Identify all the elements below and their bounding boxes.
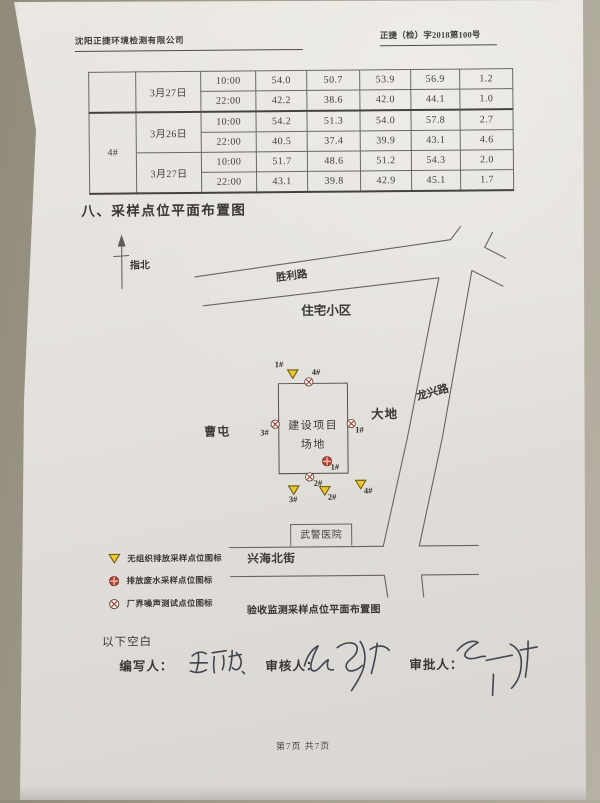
site-label-line2: 场地 <box>279 436 347 453</box>
noise-point-3: 3# <box>270 419 282 429</box>
document-number: 正捷（检）字2018第100号 <box>380 28 497 46</box>
triangle-marker-icon <box>287 369 299 379</box>
value-cell: 39.9 <box>360 131 411 151</box>
time-cell: 10:00 <box>201 152 256 172</box>
blank-below-note: 以下空白 <box>102 633 152 649</box>
value-cell: 51.7 <box>256 151 307 171</box>
value-cell: 48.6 <box>307 151 360 171</box>
value-cell: 43.1 <box>411 130 460 150</box>
date-cell: 3月27日 <box>136 71 201 112</box>
value-cell: 43.1 <box>257 171 308 192</box>
page-content: 沈阳正捷环境检测有限公司 正捷（检）字2018第100号 3月27日 10:00… <box>0 0 600 803</box>
compass-north-icon <box>114 234 129 288</box>
noise-point-2: 2# <box>305 472 317 482</box>
time-cell: 10:00 <box>201 111 256 132</box>
value-cell: 1.2 <box>460 69 513 89</box>
reviewer-label: 审核人： <box>265 655 319 674</box>
point-label: 3# <box>260 427 269 437</box>
writer-label: 编写人： <box>119 655 173 674</box>
noise-marker-icon <box>109 598 120 609</box>
value-cell: 45.1 <box>412 170 461 191</box>
sampling-point-unorganized-1: 1# <box>287 369 299 379</box>
photo-of-document: { "header": { "company": "沈阳正捷环境检测有限公司",… <box>0 0 600 800</box>
point-label: 1# <box>355 424 364 434</box>
monitoring-table: 3月27日 10:00 54.0 50.7 53.9 56.9 1.2 22:0… <box>88 68 514 195</box>
hospital-box: 武警医院 <box>290 524 352 547</box>
value-cell: 40.5 <box>256 131 307 151</box>
value-cell: 42.9 <box>361 171 412 192</box>
sampling-point-unorganized-4: 4# <box>355 479 367 489</box>
area-label-dadi: 大地 <box>371 403 398 422</box>
legend-item-unorganized: 无组织排放采样点位图标 <box>108 552 222 565</box>
value-cell: 4.6 <box>460 130 513 150</box>
point-cell <box>89 72 136 113</box>
approver-signature <box>457 641 537 696</box>
noise-marker-icon <box>270 419 280 429</box>
point-label: 4# <box>364 485 373 495</box>
value-cell: 2.7 <box>460 109 513 130</box>
document-page: 沈阳正捷环境检测有限公司 正捷（检）字2018第100号 3月27日 10:00… <box>0 0 600 800</box>
map-caption: 验收监测采样点位平面布置图 <box>247 600 381 616</box>
writer-signature <box>190 650 244 673</box>
point-label: 1# <box>275 359 284 369</box>
wastewater-point-1: 1# <box>321 456 333 466</box>
value-cell: 57.8 <box>411 110 460 131</box>
date-cell: 3月26日 <box>136 112 201 153</box>
legend-label: 厂界噪声测试点位图标 <box>127 597 213 610</box>
noise-marker-icon <box>304 377 314 387</box>
time-cell: 22:00 <box>201 132 256 152</box>
site-label-line1: 建设项目 <box>279 417 347 434</box>
construction-site-box: 建设项目 场地 <box>278 383 349 475</box>
page-number: 第7页 共7页 <box>276 739 330 752</box>
time-cell: 10:00 <box>201 71 256 91</box>
sampling-point-unorganized-3: 3# <box>288 485 300 495</box>
point-label: 2# <box>328 492 337 502</box>
road-label-xinghai: 兴海北街 <box>247 550 295 566</box>
point-label: 1# <box>331 462 340 472</box>
value-cell: 51.2 <box>360 151 411 171</box>
company-name: 沈阳正捷环境检测有限公司 <box>75 33 303 52</box>
value-cell: 56.9 <box>411 69 460 89</box>
noise-point-1: 1# <box>346 418 358 428</box>
wastewater-marker-icon <box>109 575 120 586</box>
noise-point-4: 4# <box>304 377 316 387</box>
section-title: 八、采样点位平面布置图 <box>81 198 246 219</box>
value-cell: 54.0 <box>360 110 411 131</box>
point-cell: 4# <box>89 112 137 193</box>
value-cell: 54.3 <box>411 150 460 170</box>
road-label-longxing: 龙兴路 <box>414 380 450 404</box>
area-label-residential: 住宅小区 <box>301 300 351 319</box>
legend-label: 无组织排放采样点位图标 <box>127 552 222 565</box>
time-cell: 22:00 <box>202 172 257 193</box>
point-label: 4# <box>312 367 321 377</box>
value-cell: 54.2 <box>256 111 307 132</box>
date-cell: 3月27日 <box>136 152 201 193</box>
approver-label: 审批人： <box>409 654 463 673</box>
legend-label: 排放废水采样点位图标 <box>127 574 213 587</box>
value-cell: 1.0 <box>460 89 513 110</box>
point-label: 3# <box>289 494 298 504</box>
value-cell: 2.0 <box>460 150 513 170</box>
area-label-caotun: 曹屯 <box>204 423 230 440</box>
value-cell: 50.7 <box>307 70 360 90</box>
value-cell: 42.0 <box>360 90 411 111</box>
legend-item-wastewater: 排放废水采样点位图标 <box>109 574 213 587</box>
value-cell: 37.4 <box>307 131 360 151</box>
compass-label: 指北 <box>130 256 150 271</box>
value-cell: 42.2 <box>256 90 307 111</box>
value-cell: 39.8 <box>308 171 361 192</box>
time-cell: 22:00 <box>201 91 256 112</box>
value-cell: 53.9 <box>360 70 411 90</box>
value-cell: 44.1 <box>411 89 460 110</box>
value-cell: 51.3 <box>307 110 360 131</box>
value-cell: 38.6 <box>307 90 360 111</box>
value-cell: 1.7 <box>460 170 513 191</box>
legend-item-noise: 厂界噪声测试点位图标 <box>109 597 213 610</box>
triangle-marker-icon <box>108 554 120 564</box>
value-cell: 54.0 <box>256 70 307 90</box>
sampling-point-unorganized-2: 2# <box>319 486 331 496</box>
road-label-shengli: 胜利路 <box>275 266 308 285</box>
